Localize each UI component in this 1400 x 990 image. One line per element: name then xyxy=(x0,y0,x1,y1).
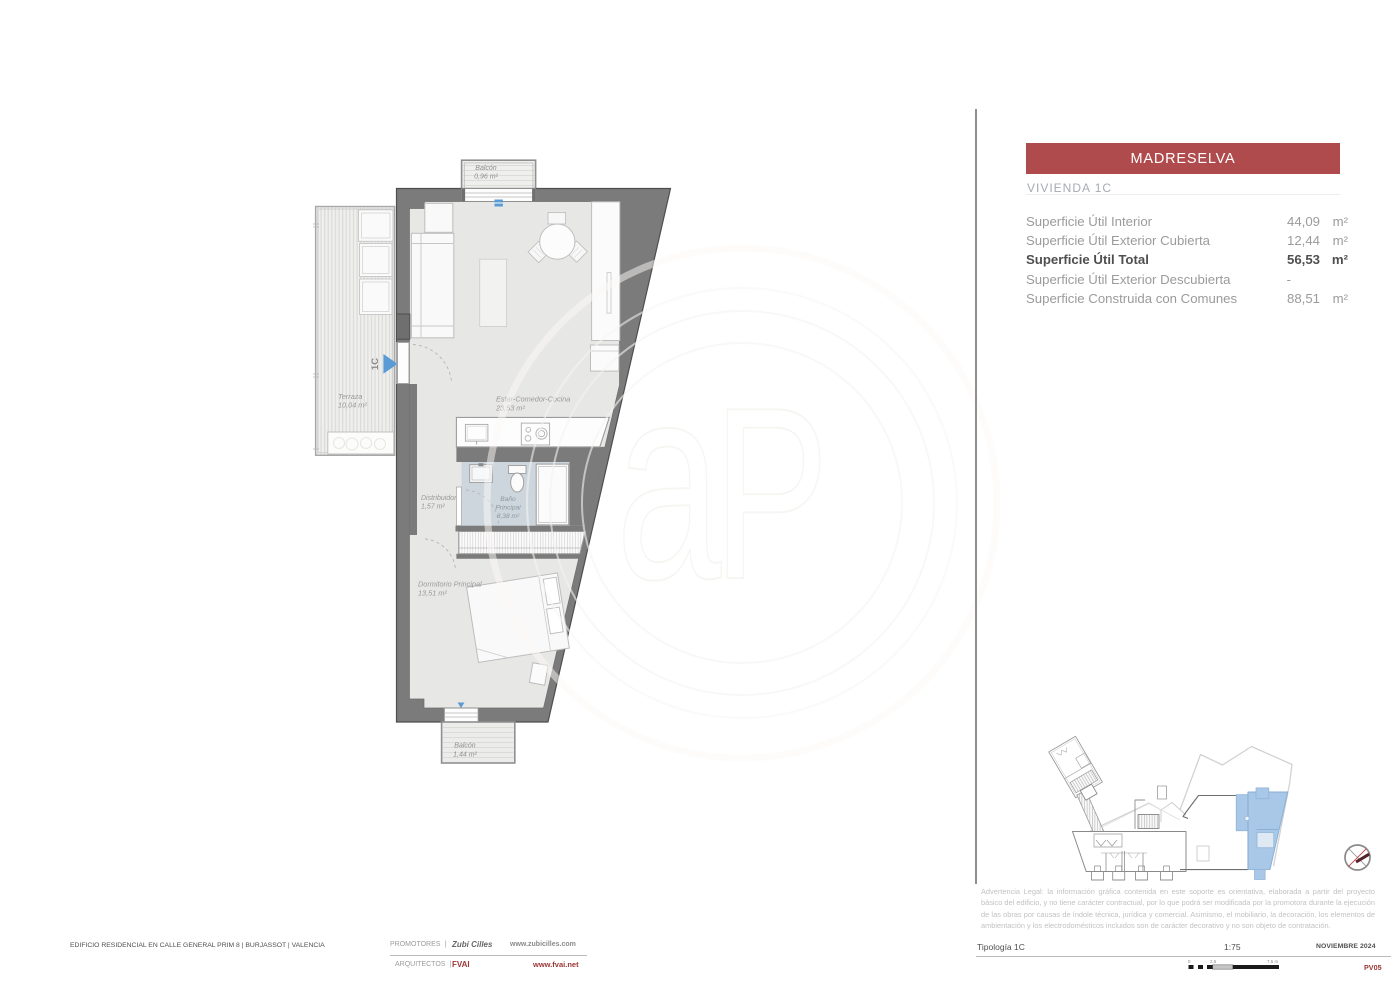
svg-text:P: P xyxy=(713,358,829,631)
svg-text:a: a xyxy=(616,325,722,637)
svg-text:1C: 1C xyxy=(370,358,381,370)
svg-text:7,5 m: 7,5 m xyxy=(1267,959,1279,964)
svg-text:Balcón: Balcón xyxy=(454,743,476,750)
svg-text:8,38 m²: 8,38 m² xyxy=(497,513,520,520)
svg-text:1,57 m²: 1,57 m² xyxy=(421,504,445,511)
svg-text:Balcón: Balcón xyxy=(475,165,497,172)
svg-text:Baño: Baño xyxy=(500,496,516,503)
svg-text:10,04 m²: 10,04 m² xyxy=(338,401,367,410)
svg-text:Dormitorio Principal: Dormitorio Principal xyxy=(418,580,482,589)
svg-text:0,96 m²: 0,96 m² xyxy=(474,174,498,181)
svg-text:Distribuidor: Distribuidor xyxy=(421,495,457,502)
svg-text:1,44 m²: 1,44 m² xyxy=(453,752,477,759)
svg-text:0: 0 xyxy=(1188,959,1191,964)
svg-text:2,5: 2,5 xyxy=(1210,959,1217,964)
svg-text:13,51 m²: 13,51 m² xyxy=(418,589,447,598)
svg-text:Principal: Principal xyxy=(495,505,521,512)
